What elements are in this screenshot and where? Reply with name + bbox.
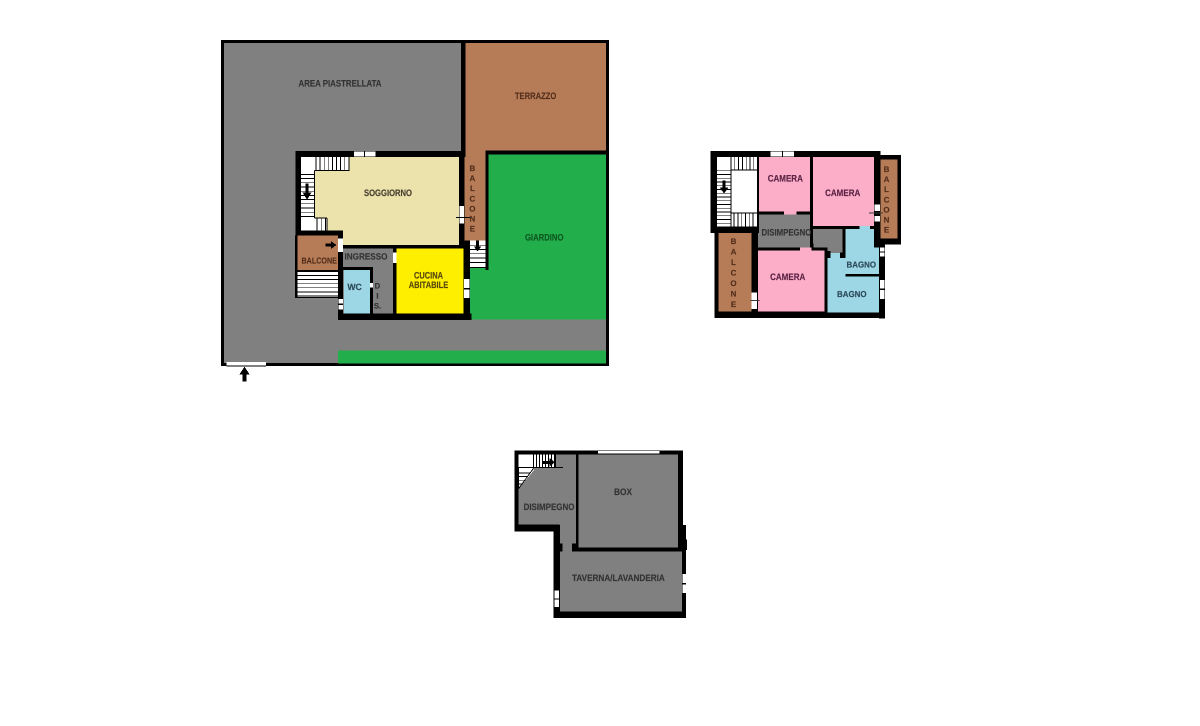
- svg-text:TERRAZZO: TERRAZZO: [515, 90, 556, 101]
- svg-text:A: A: [884, 175, 890, 184]
- svg-text:ABITABILE: ABITABILE: [409, 279, 449, 290]
- svg-text:BAGNO: BAGNO: [837, 289, 867, 299]
- svg-text:BOX: BOX: [614, 486, 633, 497]
- svg-text:A: A: [731, 248, 737, 257]
- svg-text:SOGGIORNO: SOGGIORNO: [364, 187, 412, 198]
- svg-text:CAMERA: CAMERA: [768, 172, 803, 183]
- svg-text:CAMERA: CAMERA: [770, 271, 805, 282]
- svg-text:S.: S.: [374, 302, 381, 311]
- svg-text:C: C: [731, 269, 737, 278]
- svg-text:BALCONE: BALCONE: [302, 256, 338, 266]
- svg-text:O: O: [883, 205, 889, 214]
- svg-text:TAVERNA/LAVANDERIA: TAVERNA/LAVANDERIA: [572, 572, 665, 583]
- svg-text:B: B: [470, 164, 476, 173]
- svg-text:L: L: [884, 185, 889, 194]
- svg-text:L: L: [731, 258, 736, 267]
- svg-text:DISIMPEGNO: DISIMPEGNO: [524, 501, 575, 512]
- svg-text:N: N: [470, 215, 476, 224]
- svg-text:D: D: [375, 282, 381, 291]
- svg-text:BAGNO: BAGNO: [847, 260, 877, 270]
- svg-text:INGRESSO: INGRESSO: [345, 251, 388, 261]
- svg-text:N: N: [731, 290, 737, 299]
- svg-text:CAMERA: CAMERA: [825, 187, 860, 198]
- svg-text:GIARDINO: GIARDINO: [525, 231, 564, 242]
- svg-text:A: A: [470, 174, 476, 183]
- svg-text:B: B: [884, 165, 890, 174]
- svg-text:E: E: [884, 226, 890, 235]
- svg-text:E: E: [470, 225, 476, 234]
- svg-text:WC: WC: [347, 282, 362, 292]
- svg-text:L: L: [470, 184, 475, 193]
- svg-text:C: C: [884, 195, 890, 204]
- svg-text:AREA PIASTRELLATA: AREA PIASTRELLATA: [299, 77, 382, 88]
- svg-text:O: O: [730, 279, 736, 288]
- svg-text:O: O: [469, 204, 475, 213]
- svg-text:DISIMPEGNO: DISIMPEGNO: [762, 226, 812, 237]
- svg-text:I: I: [376, 292, 378, 301]
- svg-text:B: B: [731, 237, 737, 246]
- svg-text:E: E: [731, 300, 737, 309]
- svg-text:C: C: [470, 194, 476, 203]
- svg-text:N: N: [884, 216, 890, 225]
